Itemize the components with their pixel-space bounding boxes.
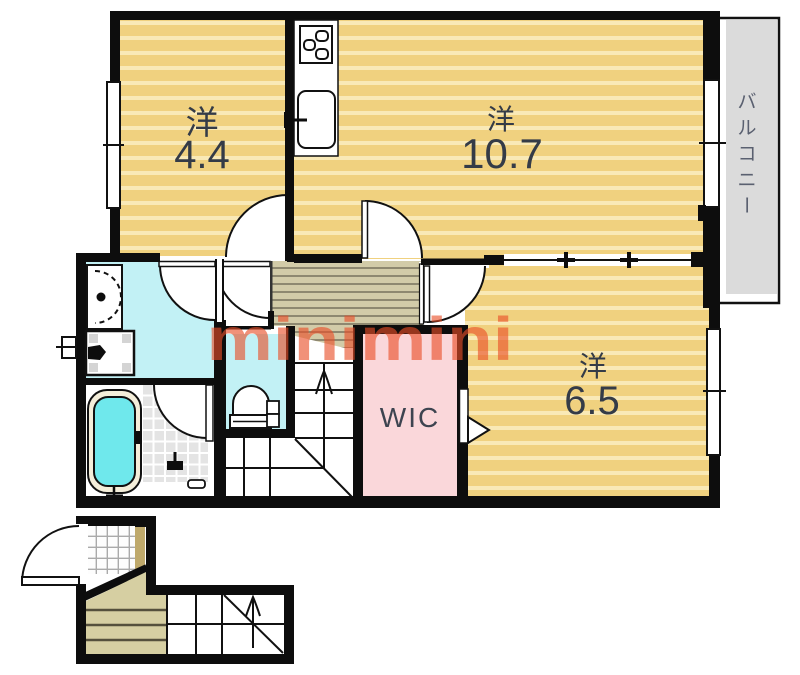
svg-text:ー: ー <box>735 195 756 214</box>
svg-text:洋: 洋 <box>579 351 607 382</box>
svg-text:ニ: ニ <box>737 170 756 191</box>
svg-text:minimini: minimini <box>207 305 514 373</box>
svg-text:WIC: WIC <box>380 402 440 433</box>
svg-text:10.7: 10.7 <box>461 130 543 177</box>
svg-text:バ: バ <box>737 92 756 113</box>
svg-text:ル: ル <box>737 118 756 139</box>
svg-text:6.5: 6.5 <box>564 379 620 423</box>
svg-text:4.4: 4.4 <box>174 133 230 177</box>
svg-text:コ: コ <box>737 144 756 165</box>
